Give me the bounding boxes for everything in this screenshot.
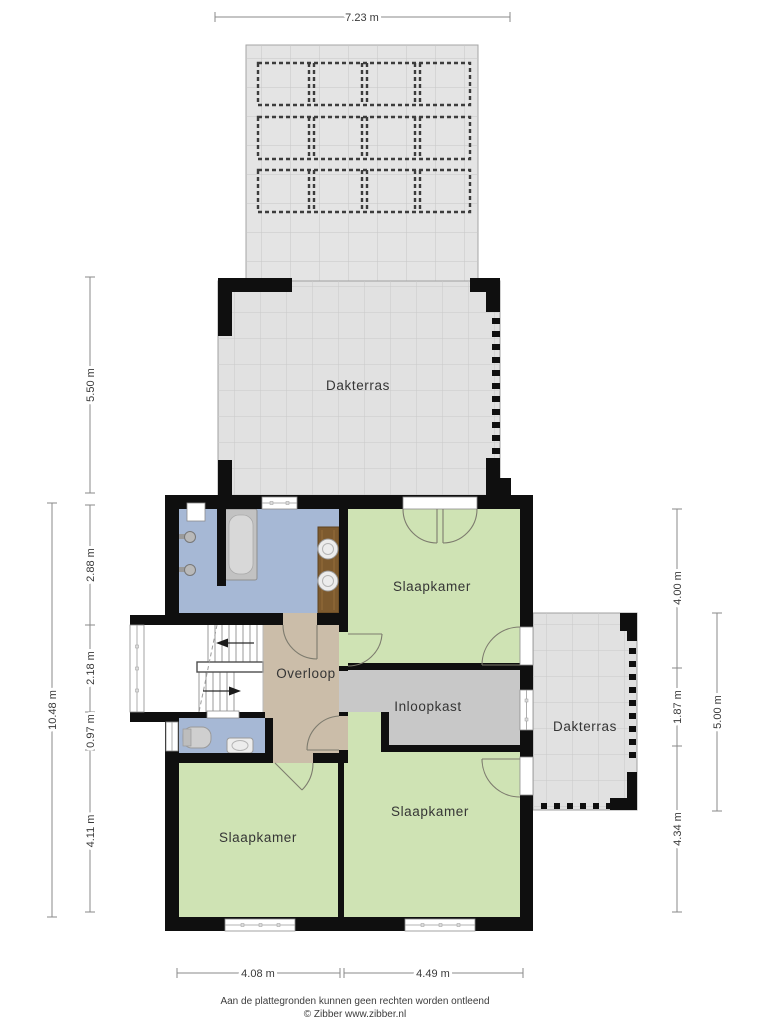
window-closet <box>520 690 533 730</box>
dim-left-3: 0.97 m <box>85 714 97 748</box>
room-label-inloopkast: Inloopkast <box>394 699 462 714</box>
footer-disclaimer: Aan de plattegronden kunnen geen rechten… <box>220 996 489 1007</box>
roof-terrace-top: Dakterras <box>218 278 511 497</box>
dim-right-0: 4.00 m <box>672 571 684 605</box>
dim-right-2: 4.34 m <box>672 812 684 846</box>
dim-left-0: 5.50 m <box>85 368 97 402</box>
hand-basin <box>227 738 253 753</box>
window-toilet <box>166 722 178 751</box>
dim-top: 7.23 m <box>345 12 379 24</box>
room-label-overloop: Overloop <box>276 666 336 681</box>
dim-bottom-1: 4.49 m <box>416 968 450 980</box>
room-label-slaapkamer-bl: Slaapkamer <box>219 830 297 845</box>
room-label-dakterras-right: Dakterras <box>553 719 617 734</box>
bedroom-br-nook <box>348 712 381 752</box>
bathtub <box>225 509 257 580</box>
dim-left-4: 4.11 m <box>85 815 97 848</box>
toilet <box>183 727 211 748</box>
roof-area <box>246 45 478 281</box>
bedroom-br-floor <box>344 745 520 917</box>
roof-terrace-right: Dakterras <box>533 613 637 810</box>
window-stair-bay <box>130 625 144 712</box>
landing-floor <box>263 625 348 757</box>
closet-passage <box>339 671 348 712</box>
window-bottom-right <box>405 919 475 931</box>
dim-right-1: 1.87 m <box>672 690 684 724</box>
stair-landing-rail <box>197 662 263 672</box>
door-toilet <box>207 711 239 718</box>
window-top <box>262 497 297 509</box>
footer-credit: © Zibber www.zibber.nl <box>304 1009 406 1020</box>
floorplan-page: Dakterras Dakterras <box>0 0 768 1024</box>
floorplan-canvas: Dakterras Dakterras <box>0 0 768 1024</box>
dim-left-1: 2.88 m <box>85 548 97 582</box>
dim-right-outer: 5.00 m <box>712 695 724 729</box>
window-bottom-left <box>225 919 295 931</box>
double-sink-vanity <box>318 527 339 613</box>
dim-left-2: 2.18 m <box>85 651 97 685</box>
room-label-dakterras-top: Dakterras <box>326 378 390 393</box>
dim-bottom-0: 4.08 m <box>241 968 275 980</box>
niche-window <box>187 503 205 521</box>
footer: Aan de plattegronden kunnen geen rechten… <box>220 996 489 1020</box>
room-label-slaapkamer-top: Slaapkamer <box>393 579 471 594</box>
dim-left-total: 10.48 m <box>47 690 59 730</box>
room-label-slaapkamer-br: Slaapkamer <box>391 804 469 819</box>
